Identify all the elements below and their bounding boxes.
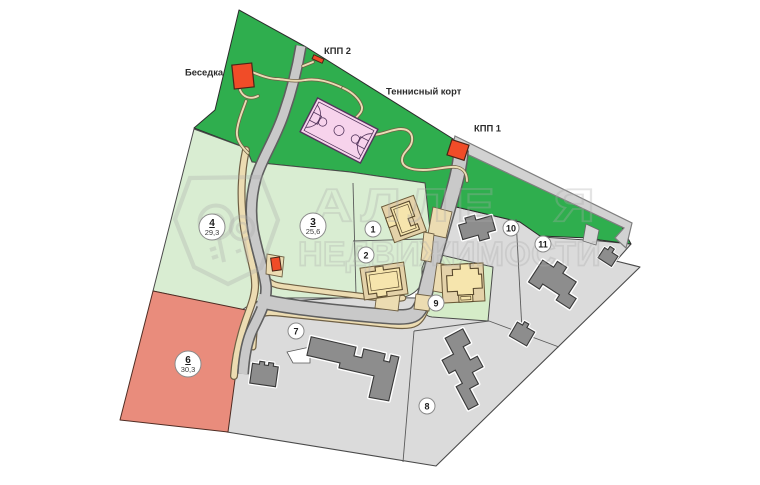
svg-text:8: 8 xyxy=(424,402,429,412)
svg-text:30,3: 30,3 xyxy=(181,365,196,374)
svg-text:АЛЛЕЯ: АЛЛЕЯ xyxy=(311,180,602,231)
svg-text:11: 11 xyxy=(538,240,548,250)
svg-text:2: 2 xyxy=(363,251,368,261)
svg-text:9: 9 xyxy=(433,299,438,309)
svg-text:Беседка: Беседка xyxy=(185,67,224,78)
svg-text:1: 1 xyxy=(370,225,375,235)
svg-text:29,3: 29,3 xyxy=(205,228,220,237)
svg-text:НЕДВИЖИМОСТИ: НЕДВИЖИМОСТИ xyxy=(298,236,601,274)
svg-text:25,6: 25,6 xyxy=(306,227,321,236)
svg-text:Теннисный корт: Теннисный корт xyxy=(386,86,462,97)
svg-text:10: 10 xyxy=(506,224,516,234)
svg-text:КПП 1: КПП 1 xyxy=(474,123,501,134)
svg-text:КПП 2: КПП 2 xyxy=(324,45,351,56)
svg-text:7: 7 xyxy=(293,327,298,337)
